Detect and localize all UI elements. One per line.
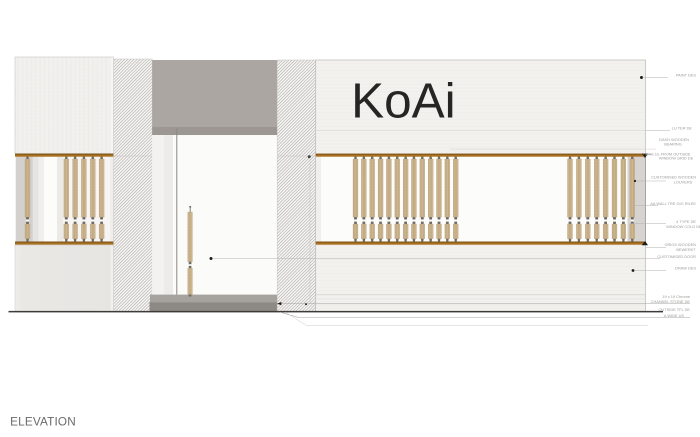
svg-text:OUTSIDE TFL DE: OUTSIDE TFL DE	[658, 307, 690, 312]
svg-text:WINDOW GRID DE: WINDOW GRID DE	[659, 155, 694, 160]
svg-text:ELEVATION: ELEVATION	[10, 414, 76, 428]
svg-text:PAINT DES: PAINT DES	[676, 73, 697, 78]
svg-text:CHANNEL STONE DE: CHANNEL STONE DE	[651, 299, 691, 304]
svg-text:BEWERKT: BEWERKT	[676, 247, 696, 252]
svg-text:DRAW DES: DRAW DES	[675, 265, 696, 270]
svg-text:LU TER DE: LU TER DE	[672, 125, 693, 130]
svg-text:WINDOW COLD DE: WINDOW COLD DE	[666, 224, 700, 229]
svg-text:AA WALL TRE GIG RILEE: AA WALL TRE GIG RILEE	[650, 201, 696, 206]
svg-text:BEARING: BEARING	[664, 142, 682, 147]
svg-text:CUSTOMISED DOOR: CUSTOMISED DOOR	[657, 254, 696, 259]
svg-text:A WIDE US: A WIDE US	[664, 313, 685, 318]
svg-text:LOUVERS: LOUVERS	[674, 179, 693, 184]
svg-text:KoAi: KoAi	[351, 74, 456, 129]
